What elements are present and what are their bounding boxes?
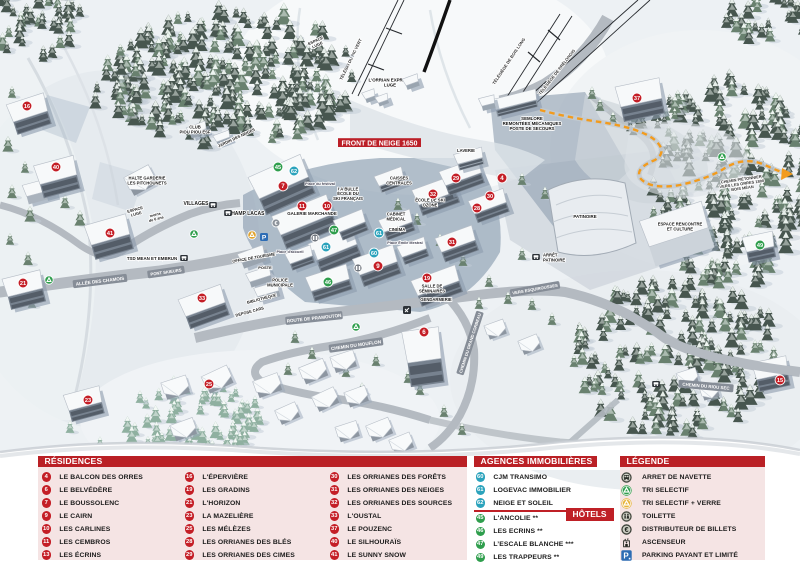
svg-text:46: 46: [325, 280, 331, 286]
svg-text:62: 62: [291, 169, 297, 175]
svg-text:45: 45: [275, 165, 281, 171]
svg-text:16: 16: [24, 104, 30, 110]
svg-text:MÉDICAL: MÉDICAL: [386, 216, 406, 221]
svg-text:PATINOIRE: PATINOIRE: [543, 257, 565, 262]
svg-text:POSTE DE SECOURS: POSTE DE SECOURS: [509, 126, 554, 131]
svg-text:GALERIE MARCHANDE: GALERIE MARCHANDE: [287, 211, 337, 216]
svg-text:23: 23: [85, 398, 91, 404]
svg-text:LES PITCHOUNETS: LES PITCHOUNETS: [127, 180, 167, 185]
svg-text:SÉMINAIRES: SÉMINAIRES: [419, 288, 445, 293]
svg-text:ET CULTURE: ET CULTURE: [667, 226, 693, 231]
svg-text:€: €: [274, 221, 277, 227]
svg-text:33: 33: [199, 296, 205, 302]
svg-text:28: 28: [474, 206, 480, 212]
svg-text:POSTE: POSTE: [258, 265, 272, 270]
svg-text:61: 61: [376, 231, 382, 237]
svg-text:29: 29: [453, 176, 459, 182]
svg-text:21: 21: [20, 281, 26, 287]
svg-text:30: 30: [487, 194, 493, 200]
svg-text:GENDARMERIE: GENDARMERIE: [420, 297, 452, 302]
svg-text:CHAMP LACAS: CHAMP LACAS: [228, 211, 266, 217]
svg-text:MUNICIPALE: MUNICIPALE: [267, 282, 293, 287]
svg-text:Place d'accueil: Place d'accueil: [276, 250, 303, 254]
svg-text:PATINOIRE: PATINOIRE: [573, 214, 596, 219]
svg-text:40: 40: [53, 165, 59, 171]
svg-text:PIOU PIOU ESF: PIOU PIOU ESF: [180, 129, 211, 134]
svg-text:P: P: [262, 235, 267, 242]
svg-text:19: 19: [424, 276, 430, 282]
svg-text:32: 32: [430, 192, 436, 198]
svg-text:7: 7: [281, 183, 285, 190]
svg-text:FRONT DE NEIGE 1650: FRONT DE NEIGE 1650: [342, 138, 418, 147]
svg-text:25: 25: [206, 382, 212, 388]
svg-text:CENTRALES: CENTRALES: [386, 180, 412, 185]
svg-text:11: 11: [299, 204, 305, 210]
svg-text:TSD MEAN ET EMBRUN: TSD MEAN ET EMBRUN: [127, 256, 177, 261]
svg-text:Place Émile Mestral: Place Émile Mestral: [387, 240, 422, 245]
svg-text:47: 47: [331, 228, 337, 234]
svg-text:Place du festival: Place du festival: [305, 182, 335, 186]
svg-text:9: 9: [376, 263, 380, 270]
svg-text:6: 6: [422, 329, 426, 336]
svg-text:CINÉMA: CINÉMA: [389, 227, 406, 232]
svg-text:LAVERIE: LAVERIE: [457, 148, 475, 153]
svg-text:41: 41: [107, 231, 113, 237]
svg-text:49: 49: [757, 243, 763, 249]
svg-text:VILLAGES: VILLAGES: [183, 201, 209, 207]
svg-text:37: 37: [634, 96, 640, 102]
svg-text:15: 15: [777, 378, 783, 384]
svg-text:60: 60: [371, 251, 377, 257]
svg-text:OZONE: OZONE: [423, 202, 438, 207]
svg-text:10: 10: [324, 204, 330, 210]
svg-text:4: 4: [500, 175, 504, 182]
svg-text:P: P: [623, 551, 629, 560]
svg-text:LUGE: LUGE: [384, 83, 396, 88]
svg-text:31: 31: [449, 240, 455, 246]
svg-text:61: 61: [323, 245, 329, 251]
svg-text:€: €: [624, 525, 628, 534]
svg-text:SKI FRANÇAIS: SKI FRANÇAIS: [333, 196, 363, 201]
